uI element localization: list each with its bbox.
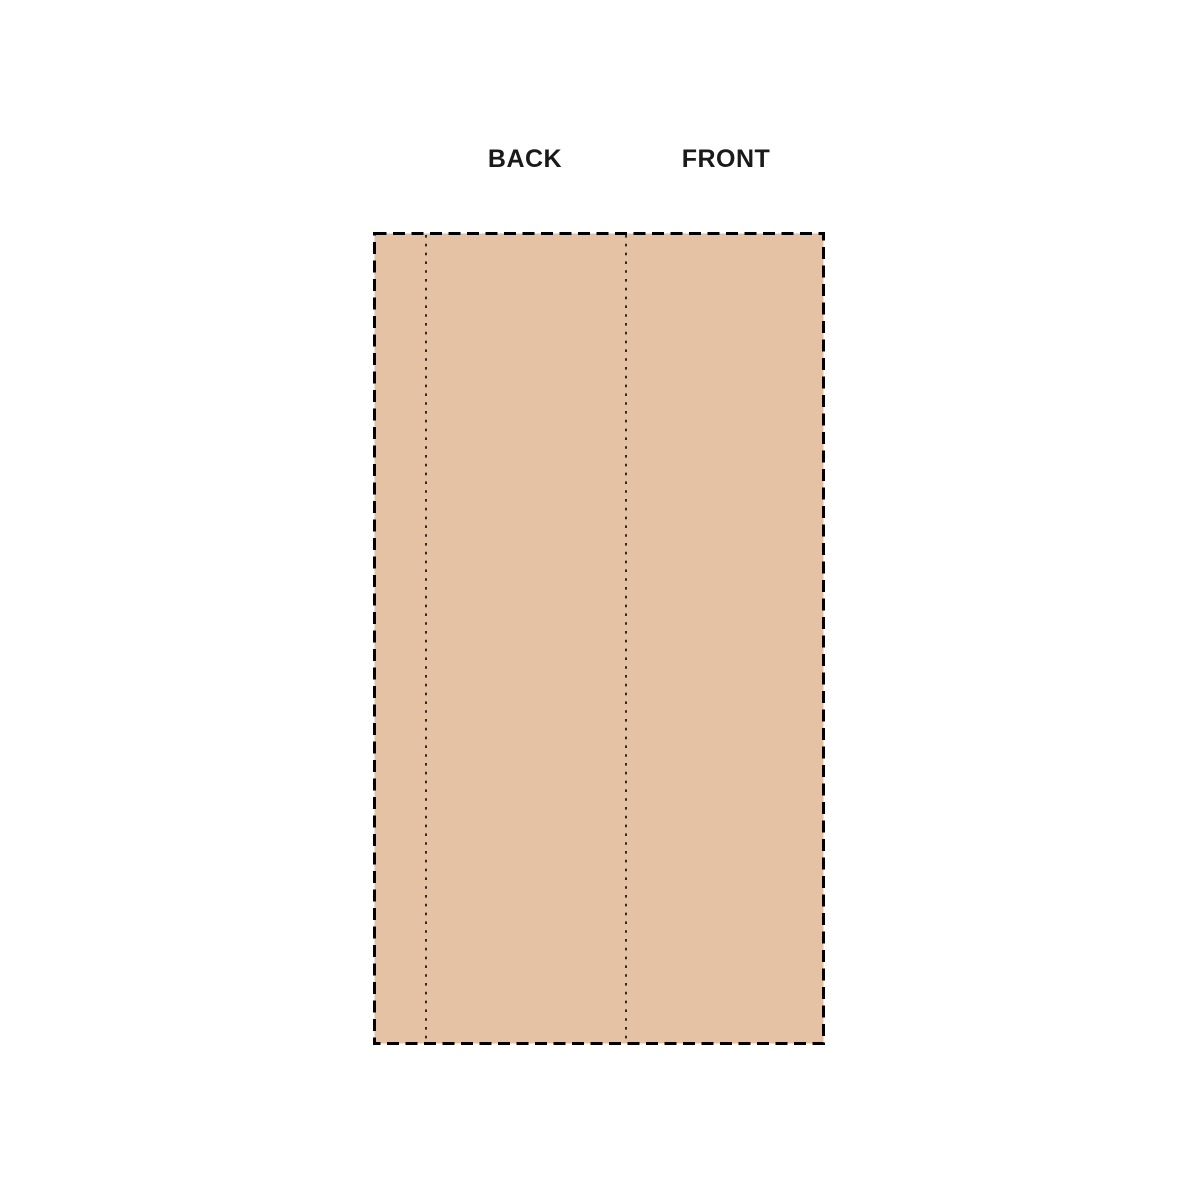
pattern-piece-svg: [0, 0, 1200, 1200]
diagram-canvas: BACK FRONT: [0, 0, 1200, 1200]
pattern-piece-outline: [375, 234, 824, 1044]
